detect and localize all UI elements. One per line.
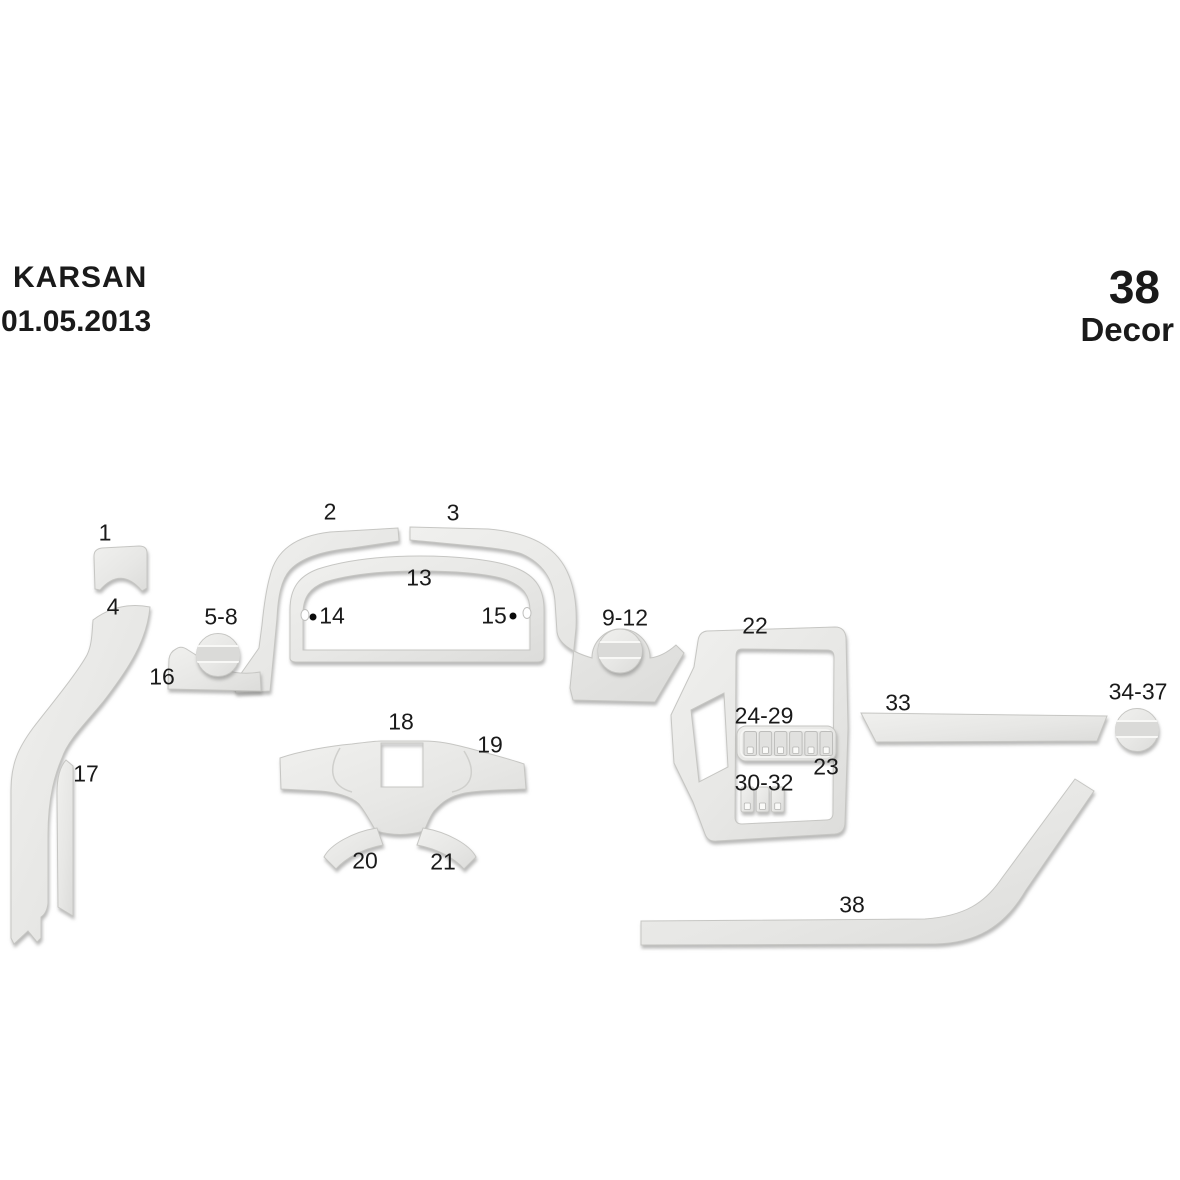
part-label-16: 16 — [149, 664, 175, 691]
bezel-screw-hole-left — [301, 610, 309, 621]
part-label-20: 20 — [352, 848, 378, 875]
part-label-17: 17 — [73, 761, 99, 788]
part-label-4: 4 — [107, 594, 120, 621]
part-label-15: 15 — [481, 603, 507, 630]
part-label-3: 3 — [447, 500, 460, 527]
part-2-shape — [233, 528, 399, 693]
part-17-shape — [57, 760, 73, 916]
part-label-23: 23 — [813, 754, 839, 781]
part-label-33: 33 — [885, 690, 911, 717]
part-label-13: 13 — [406, 565, 432, 592]
part-label-9-12: 9-12 — [602, 605, 648, 632]
part-label-1: 1 — [99, 520, 112, 547]
parts-svg — [0, 0, 1180, 1180]
part-label-22: 22 — [742, 613, 768, 640]
part-label-30-32: 30-32 — [735, 770, 794, 797]
bezel-screw-hole-right — [523, 608, 531, 619]
part-1-shape — [94, 546, 147, 591]
part-label-5-8: 5-8 — [204, 604, 237, 631]
screw-dot-14 — [310, 614, 317, 621]
part-label-18: 18 — [388, 709, 414, 736]
part-label-34-37: 34-37 — [1109, 679, 1168, 706]
part-label-2: 2 — [324, 499, 337, 526]
diagram-canvas: KARSAN 01.05.2013 38 Decor — [0, 0, 1180, 1180]
vent-ring-9-12 — [597, 629, 643, 673]
part-label-38: 38 — [839, 892, 865, 919]
vent-ring-34-37 — [1114, 709, 1160, 752]
part-label-24-29: 24-29 — [735, 703, 794, 730]
part-label-21: 21 — [430, 849, 456, 876]
part-label-19: 19 — [477, 732, 503, 759]
part-33-shape — [861, 713, 1107, 742]
part-label-14: 14 — [319, 603, 345, 630]
screw-dot-15 — [510, 613, 517, 620]
